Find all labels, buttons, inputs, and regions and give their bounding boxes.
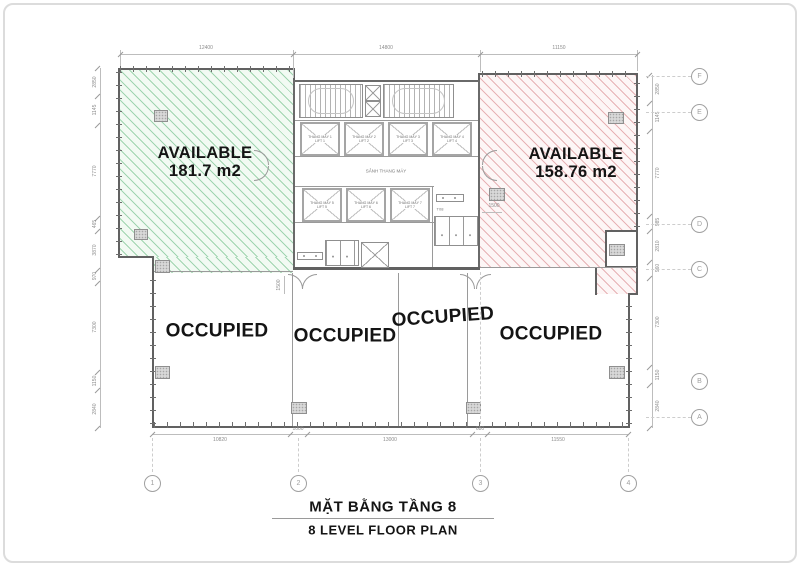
plan-title-en: 8 LEVEL FLOOR PLAN	[308, 523, 458, 538]
dim-top-1: 12400	[199, 45, 213, 51]
mullions	[482, 71, 636, 77]
column	[155, 260, 170, 273]
dim-bottom-1: 10820	[213, 437, 227, 443]
grid-bubble-2: 2	[290, 475, 307, 492]
dim-left-9: 2840	[92, 403, 98, 414]
elevator-7: THANG MÁY 7LIFT 7	[390, 188, 430, 222]
dim-right-3: 7770	[655, 167, 661, 178]
elevator-1: THANG MÁY 1LIFT 1	[300, 122, 340, 156]
dim-bottom-3: 13000	[383, 437, 397, 443]
grid-centerline	[480, 272, 481, 424]
wall	[605, 230, 607, 268]
column	[155, 366, 170, 379]
grid-bubble-E: E	[691, 104, 708, 121]
mullions	[116, 70, 122, 255]
grid-leader	[646, 76, 691, 77]
dim-right-5: 2810	[655, 240, 661, 251]
dim-right-2: 1145	[655, 112, 661, 123]
occupied-room-4: OCCUPIED	[500, 325, 603, 346]
dimension-line-right	[652, 75, 653, 428]
available-right-label: AVAILABLE 158.76 m2	[529, 145, 624, 181]
dim-top-3: 11150	[552, 45, 565, 51]
dim-right-9: 2840	[655, 400, 661, 411]
dim-right-6: 960	[655, 264, 661, 272]
core-wall	[432, 186, 433, 268]
grid-bubble-D: D	[691, 216, 708, 233]
core-wall	[295, 120, 478, 121]
grid-leader	[628, 438, 629, 472]
wc-label: T08	[437, 207, 444, 212]
column	[466, 402, 481, 414]
mullions	[150, 275, 156, 424]
stair-right	[383, 84, 454, 118]
mullions	[154, 422, 628, 428]
partition	[398, 273, 399, 426]
column	[608, 112, 624, 124]
mullions	[120, 66, 293, 72]
shaft-box	[365, 85, 381, 101]
wc-sink-counter	[436, 194, 464, 202]
lobby-label: SẢNH THANG MÁY	[366, 169, 406, 174]
column	[134, 229, 148, 240]
grid-leader	[152, 438, 153, 472]
dim-top-2: 14800	[379, 45, 393, 51]
available-area-right-hatch-lower	[597, 268, 638, 294]
service-shaft	[361, 242, 389, 268]
core-wall	[295, 222, 434, 223]
witness-line	[482, 212, 502, 213]
core-wall	[295, 186, 434, 187]
dim-left-6: 970	[92, 272, 98, 280]
dimension-line-top	[120, 54, 638, 55]
dim-left-1: 2850	[92, 76, 98, 87]
grid-leader	[646, 269, 691, 270]
plan-title-vi: MẶT BẰNG TẦNG 8	[309, 499, 457, 516]
wall	[480, 267, 637, 268]
wc-stalls-right	[434, 216, 478, 246]
grid-bubble-B: B	[691, 373, 708, 390]
grid-bubble-1: 1	[144, 475, 161, 492]
available-left-label: AVAILABLE 181.7 m2	[158, 144, 253, 180]
elevator-5: THANG MÁY 5LIFT 5	[302, 188, 342, 222]
witness-line	[284, 276, 285, 294]
column	[489, 188, 505, 201]
wall	[118, 256, 154, 258]
dim-left-4: 465	[92, 220, 98, 228]
dim-bottom-4: 680	[476, 426, 484, 432]
column	[609, 366, 625, 379]
shaft-box	[365, 101, 381, 117]
wc-sink-counter	[297, 252, 323, 260]
column	[291, 402, 307, 414]
dim-left-2: 1145	[92, 105, 98, 116]
column	[609, 244, 625, 256]
grid-leader	[480, 438, 481, 472]
dim-left-3: 7770	[92, 165, 98, 176]
grid-bubble-C: C	[691, 261, 708, 278]
core-wall	[295, 156, 478, 157]
mullions	[634, 77, 640, 227]
elevator-2: THANG MÁY 2LIFT 2	[344, 122, 384, 156]
elevator-3: THANG MÁY 3LIFT 3	[388, 122, 428, 156]
grid-bubble-A: A	[691, 409, 708, 426]
elevator-6: THANG MÁY 6LIFT 6	[346, 188, 386, 222]
floor-plan-sheet: THANG MÁY 1LIFT 1 THANG MÁY 2LIFT 2 THAN…	[0, 0, 800, 566]
mullions	[626, 297, 632, 424]
elevator-4: THANG MÁY 4LIFT 4	[432, 122, 472, 156]
dim-right-8: 1150	[655, 370, 661, 381]
grid-leader	[646, 112, 691, 113]
occupied-room-2: OCCUPIED	[294, 327, 397, 348]
dim-right-7: 7300	[655, 316, 661, 327]
grid-leader	[298, 438, 299, 472]
grid-bubble-4: 4	[620, 475, 637, 492]
wall	[478, 73, 480, 80]
dim-left-5: 3870	[92, 244, 98, 255]
dim-bottom-5: 11550	[551, 437, 565, 443]
title-divider	[272, 518, 494, 519]
column	[154, 110, 168, 122]
grid-leader	[646, 417, 691, 418]
dim-left-8: 1150	[92, 376, 98, 387]
grid-leader	[646, 224, 691, 225]
dimension-line-left	[100, 68, 101, 428]
wall	[595, 268, 597, 295]
dim-bottom-2: 1000	[292, 426, 303, 432]
dimension-line-bottom	[152, 434, 628, 435]
wall	[607, 230, 638, 232]
grid-bubble-F: F	[691, 68, 708, 85]
grid-bubble-3: 3	[472, 475, 489, 492]
wc-stalls-left	[325, 240, 359, 266]
dim-door-left: 1500	[276, 279, 282, 290]
wall	[154, 271, 293, 272]
stair-left	[299, 84, 363, 118]
dim-door-right: 1500	[488, 203, 499, 209]
dim-right-1: 2850	[655, 83, 661, 94]
dim-left-7: 7300	[92, 321, 98, 332]
occupied-room-1: OCCUPIED	[166, 322, 269, 343]
